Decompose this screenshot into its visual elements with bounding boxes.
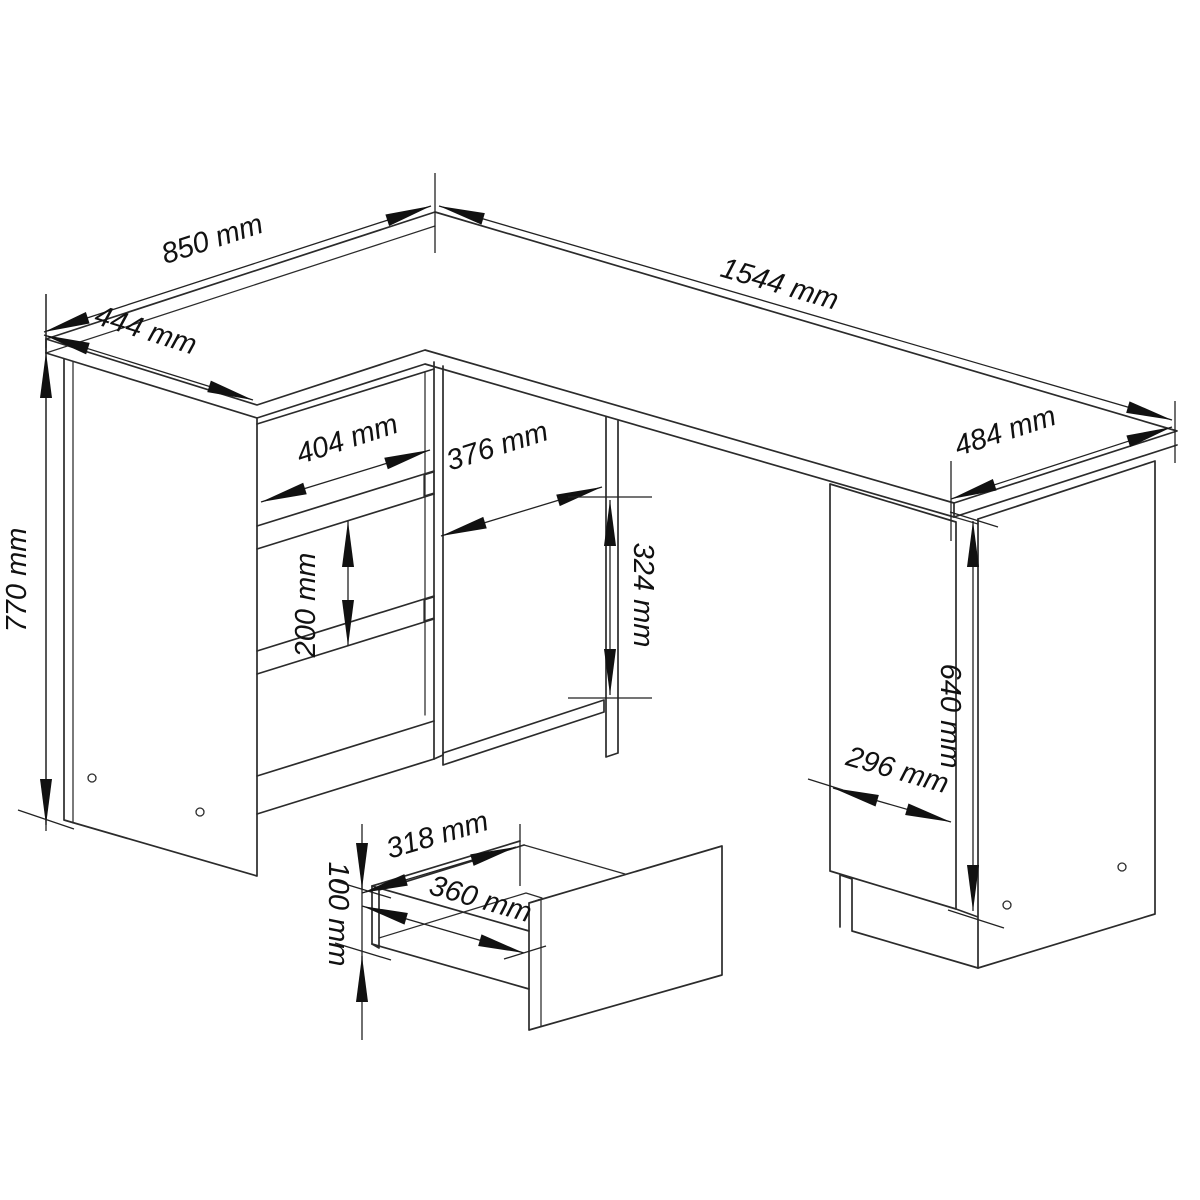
corner-desk-dimension-drawing: 850 mm 444 mm 1544 mm 484 mm 770 mm 404 … <box>0 0 1200 1200</box>
dim-label-100: 100 mm <box>322 862 354 967</box>
dimension-100: 100 mm <box>322 824 391 1040</box>
dimension-640: 640 mm <box>934 512 1004 928</box>
right-cabinet <box>830 461 1155 968</box>
dimension-360: 360 mm <box>362 870 546 959</box>
cabinet-plinth <box>840 875 978 968</box>
drawer-box-front-panel <box>529 846 722 1030</box>
dimension-324: 324 mm <box>568 497 659 698</box>
dimension-404: 404 mm <box>261 408 430 502</box>
dim-label-484: 484 mm <box>950 400 1060 463</box>
dim-line-376 <box>441 487 602 536</box>
dim-label-1544: 1544 mm <box>717 252 842 317</box>
assembly-hole-2 <box>196 808 204 816</box>
dim-label-444: 444 mm <box>91 299 201 361</box>
dim-line-404 <box>261 450 430 502</box>
pedestal-side-thickness <box>434 366 443 759</box>
desk-top <box>46 212 1177 524</box>
technical-drawing-page: 850 mm 444 mm 1544 mm 484 mm 770 mm 404 … <box>0 0 1200 1200</box>
dim-label-360: 360 mm <box>426 870 536 930</box>
dimension-1544: 1544 mm <box>439 206 1175 463</box>
divider-panel <box>606 417 618 757</box>
desk-top-underside-connector <box>954 517 978 524</box>
shelf-front-edge <box>443 700 604 765</box>
pedestal-front-panel <box>64 359 257 876</box>
dimension-484: 484 mm <box>950 400 1172 541</box>
dim-tick-296-left <box>808 779 843 790</box>
dim-tick-640-bottom <box>948 910 1004 928</box>
dim-label-376: 376 mm <box>443 415 553 477</box>
desk-top-underside-right-edge <box>954 445 1177 517</box>
dimension-770: 770 mm <box>1 294 74 831</box>
dim-label-404: 404 mm <box>292 408 402 471</box>
dim-label-200: 200 mm <box>290 553 322 659</box>
assembly-hole-3 <box>1003 901 1011 909</box>
detached-drawer-unit <box>372 841 722 1030</box>
assembly-hole-1 <box>88 774 96 782</box>
dim-line-1544 <box>439 206 1172 420</box>
dimension-200: 200 mm <box>290 521 348 658</box>
drawer-box-front-panel-inner <box>529 899 541 1026</box>
dim-tick-360-right <box>504 946 546 959</box>
dim-label-850: 850 mm <box>157 208 267 271</box>
dim-label-324: 324 mm <box>627 543 659 648</box>
drawer-box-right-wall-edge <box>524 845 625 874</box>
cabinet-side-panel <box>978 461 1155 968</box>
assembly-hole-4 <box>1118 863 1126 871</box>
dim-label-770: 770 mm <box>1 528 33 633</box>
dim-label-318: 318 mm <box>383 805 493 865</box>
dim-label-640: 640 mm <box>934 664 966 769</box>
dimension-376: 376 mm <box>441 415 602 536</box>
desk-top-outline <box>46 212 1177 503</box>
